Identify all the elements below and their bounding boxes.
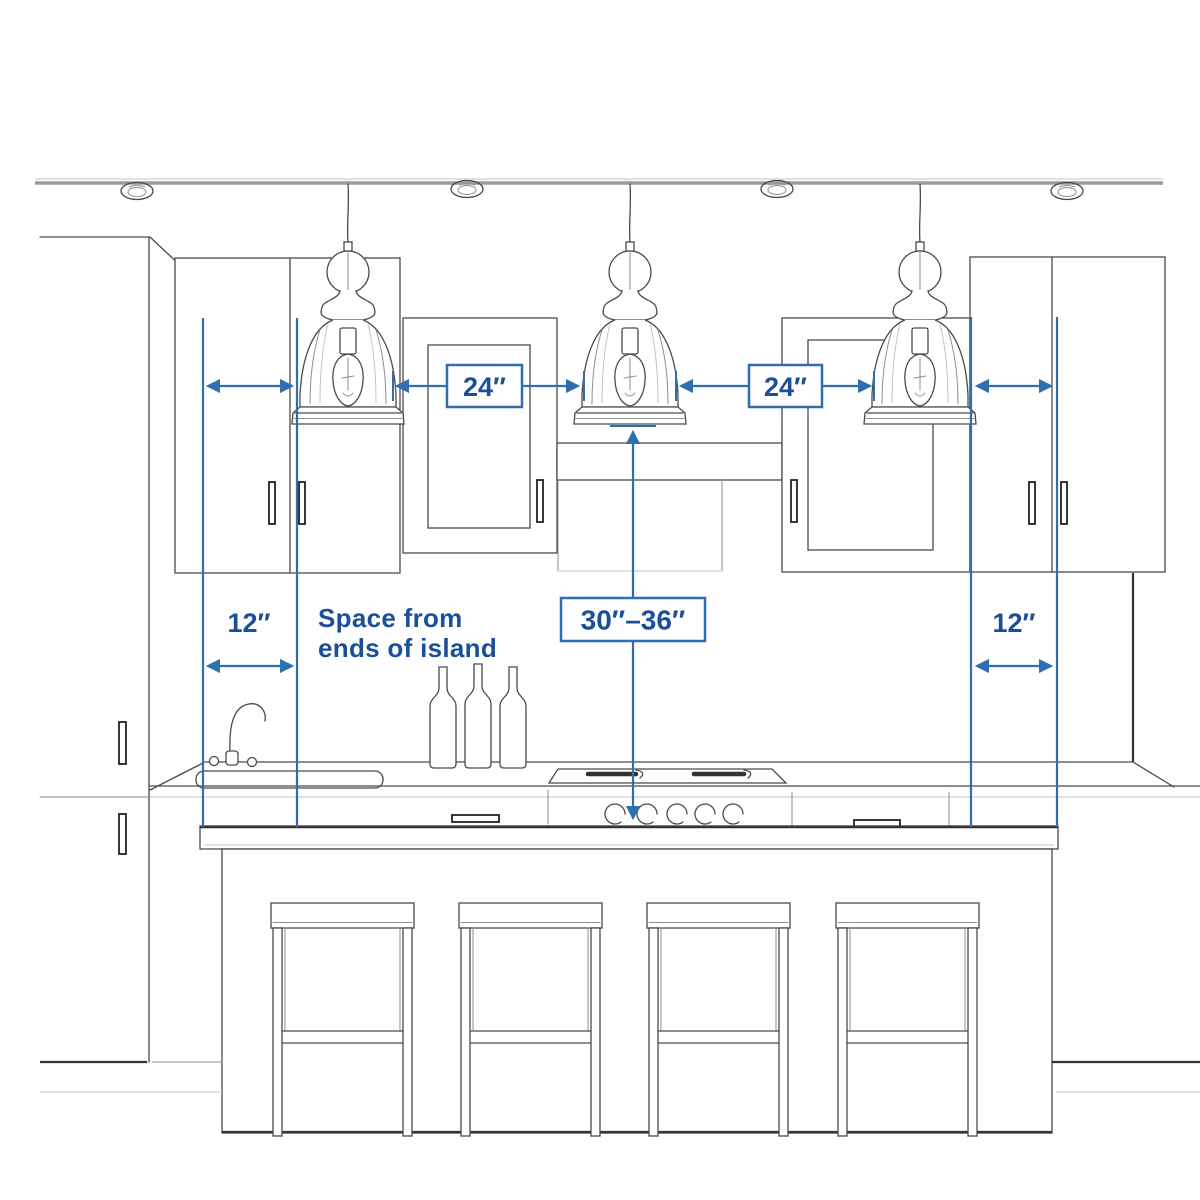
wall-corner-left: [40, 237, 183, 268]
cabinet-handle: [791, 480, 797, 522]
cabinet-handle: [1029, 482, 1035, 524]
left-base-cabinet: [119, 722, 126, 854]
cabinet-handle: [299, 482, 305, 524]
island-base: [222, 849, 1052, 1133]
kitchen-pendant-spacing-diagram: 24″ 24″ 30″–36″ 12″ 12″ Space from ends …: [0, 0, 1200, 1200]
recessed-light: [761, 181, 793, 198]
faucet: [210, 704, 266, 767]
island: [200, 826, 1058, 1133]
cooktop-knobs: [605, 804, 743, 824]
note-space-from-ends: Space from ends of island: [318, 603, 497, 663]
recessed-light: [121, 183, 153, 200]
drawer-fronts: [452, 790, 949, 827]
recessed-light: [1051, 183, 1083, 200]
pendant-light-right: [864, 184, 976, 424]
dim-label-24-right: 24″: [764, 372, 807, 402]
ceiling: [35, 179, 1163, 200]
cabinet-handle: [119, 814, 126, 854]
note-line-1: Space from: [318, 603, 463, 633]
drawer-handle: [452, 815, 499, 822]
cabinet-handle: [269, 482, 275, 524]
cabinet-right-bank: [970, 257, 1165, 572]
wine-bottles: [430, 664, 526, 768]
dim-label-12-right: 12″: [993, 608, 1036, 638]
dim-label-height: 30″–36″: [581, 605, 686, 636]
cabinet-handle: [1061, 482, 1067, 524]
cabinet-handle: [537, 480, 543, 522]
cabinet-mid-left: [403, 318, 557, 553]
note-line-2: ends of island: [318, 633, 497, 663]
island-countertop: [200, 826, 1058, 849]
recessed-light: [451, 181, 483, 198]
dim-label-24-left: 24″: [463, 372, 506, 402]
diagram-canvas: 24″ 24″ 30″–36″ 12″ 12″ Space from ends …: [0, 0, 1200, 1200]
cooktop: [549, 769, 786, 783]
cabinet-handle: [119, 722, 126, 764]
dim-label-12-left: 12″: [228, 608, 271, 638]
pendant-light-center: [574, 184, 686, 424]
range-hood: [557, 443, 782, 571]
